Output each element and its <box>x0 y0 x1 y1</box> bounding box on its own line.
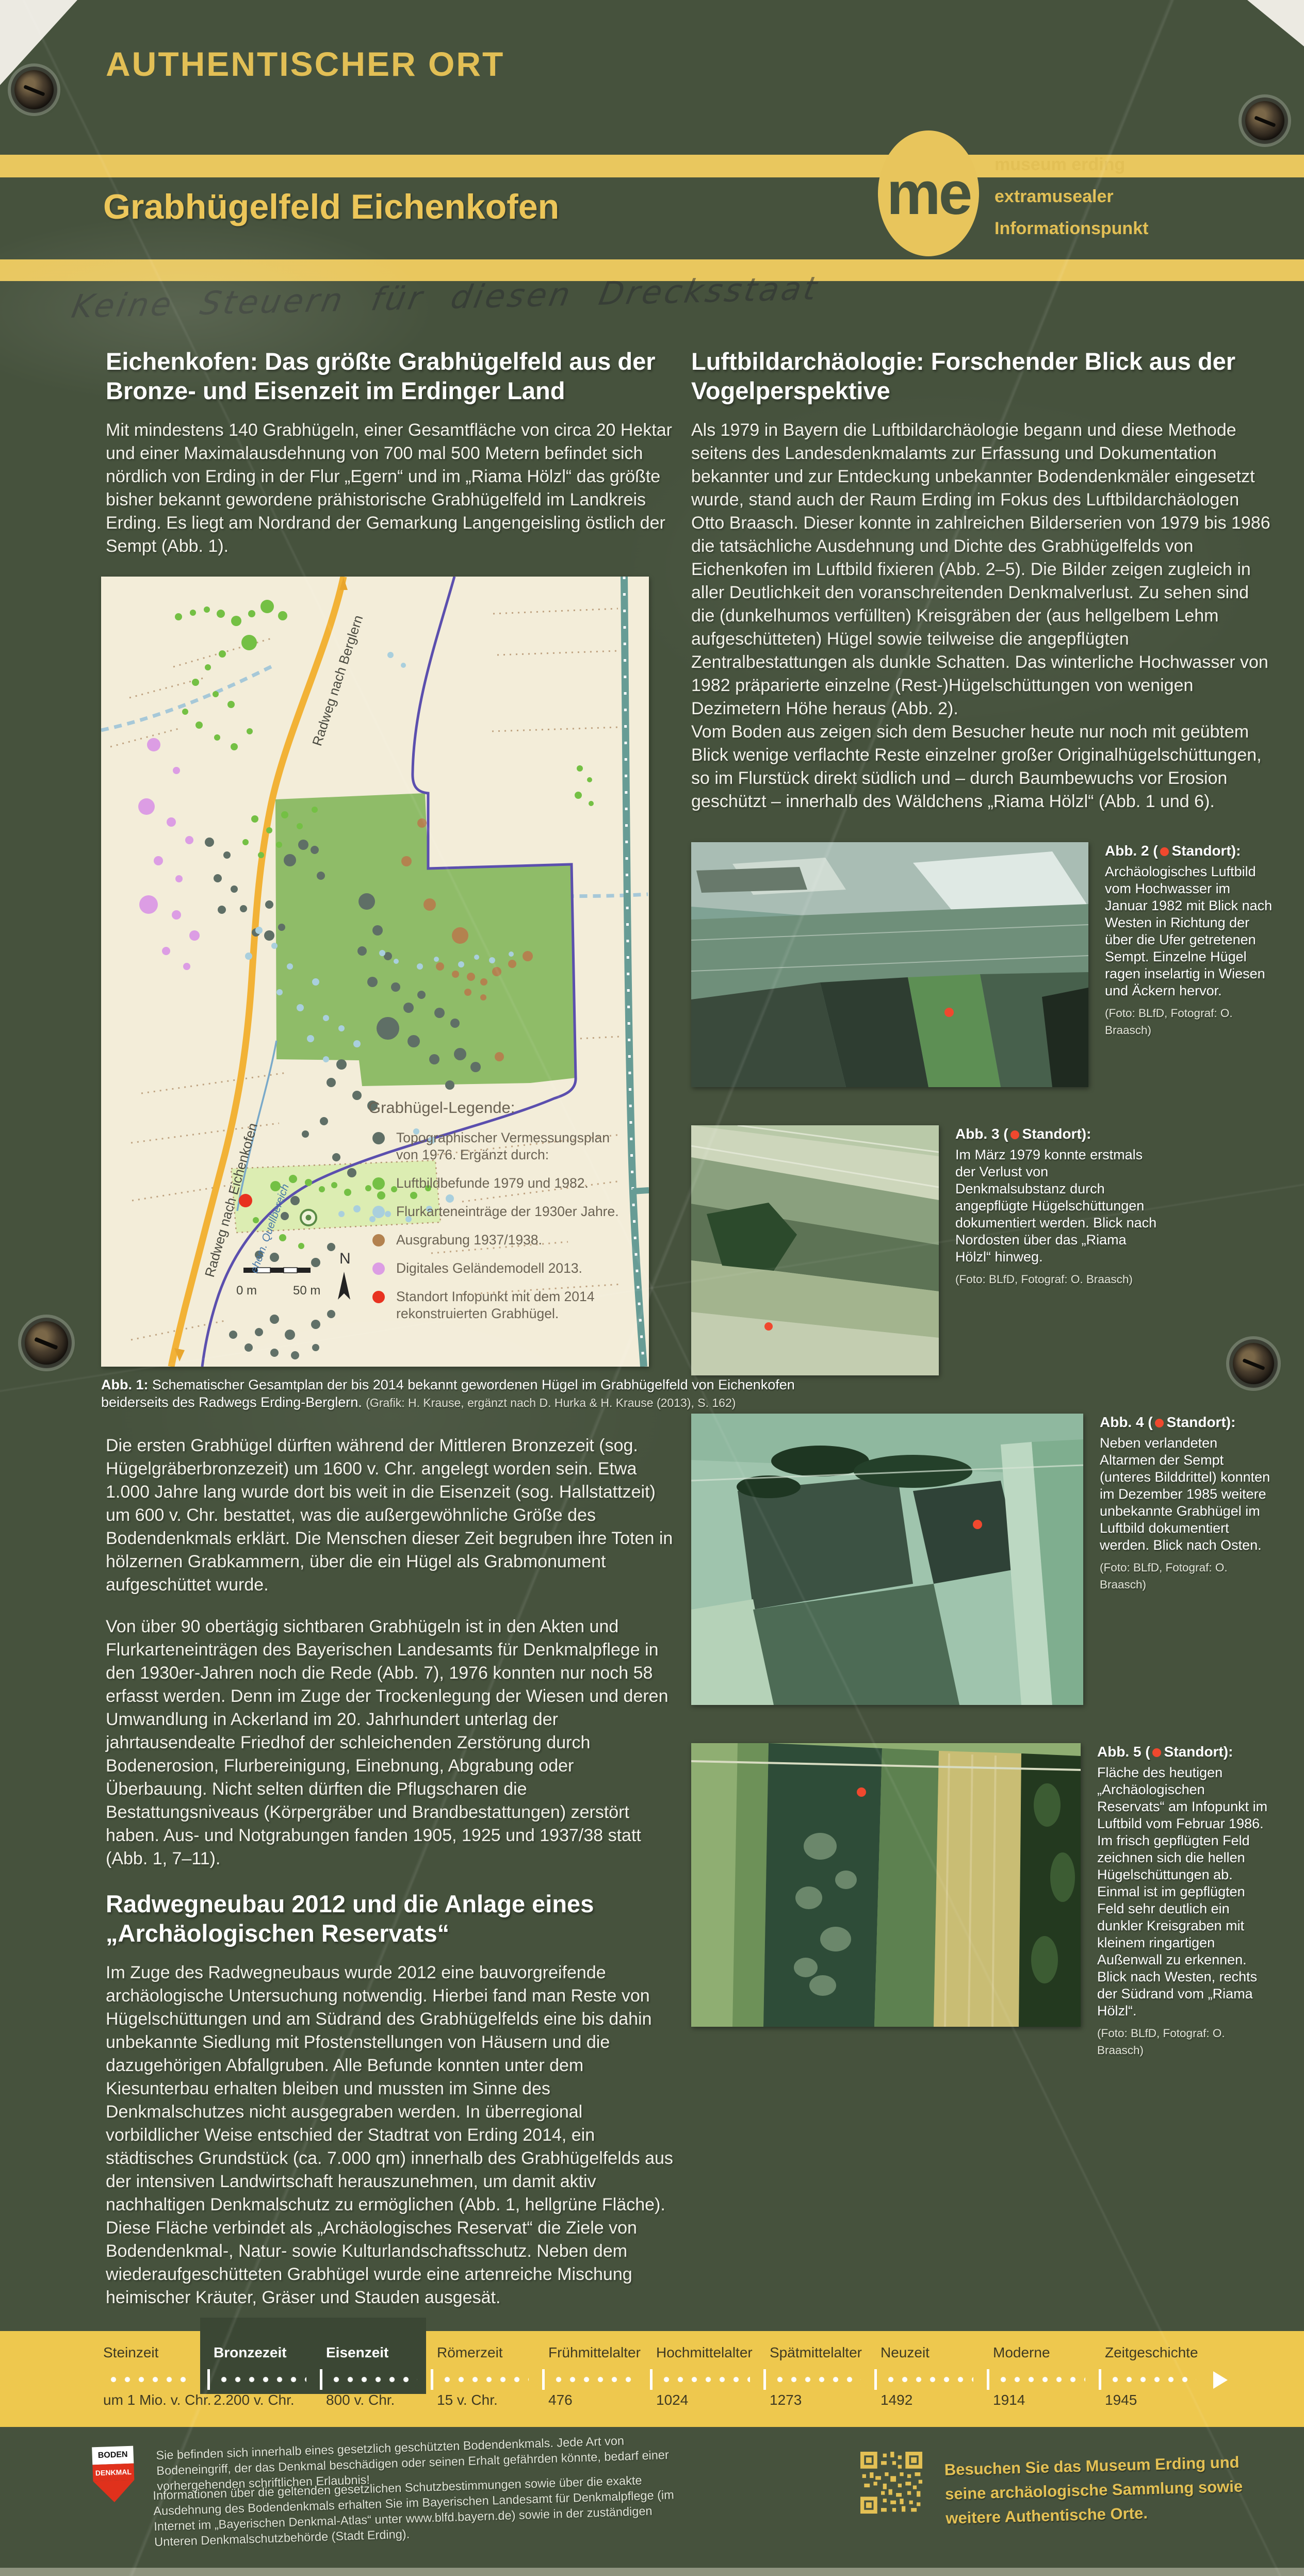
timeline-period-label: Steinzeit <box>103 2344 158 2361</box>
legend-item-label: Standort Infopunkt mit dem 2014 rekonstr… <box>396 1288 634 1322</box>
map-dot <box>367 977 378 987</box>
map-dot <box>205 664 211 670</box>
board-top-label: AUTHENTISCHER ORT <box>106 44 504 84</box>
standort-dot-icon <box>1155 1419 1164 1428</box>
map-dot <box>229 1331 237 1339</box>
map-dot <box>464 989 471 996</box>
aerial-photo-abb3 <box>691 1125 939 1375</box>
fig1-caption-label: Abb. 1: <box>101 1377 149 1392</box>
timeline-dots <box>221 2376 306 2383</box>
timeline-period-label: Moderne <box>993 2344 1050 2361</box>
legend-dot-icon <box>372 1132 385 1144</box>
timeline-dots <box>663 2376 750 2383</box>
timeline-period-date: 1914 <box>993 2392 1025 2408</box>
left-heading: Eichenkofen: Das größte Grabhügelfeld au… <box>106 347 673 405</box>
timeline-dots <box>556 2376 637 2383</box>
figure-abb3: Abb. 3 (Standort): Im März 1979 konnte e… <box>691 1125 1274 1375</box>
map-dot <box>336 1059 347 1070</box>
timeline-period-neuzeit: Neuzeit1492 <box>874 2331 987 2427</box>
map-dot <box>423 898 436 911</box>
map-dot <box>278 924 285 931</box>
map-dot <box>218 906 226 914</box>
legend-dot-icon <box>372 1206 385 1218</box>
timeline-period-date: 1945 <box>1105 2392 1137 2408</box>
map-dot <box>231 743 238 750</box>
map-dot <box>470 1062 481 1072</box>
map-dot <box>407 1035 420 1047</box>
timeline-period-label: Zeitgeschichte <box>1105 2344 1198 2361</box>
map-dot <box>589 801 594 806</box>
map-dot <box>311 1258 320 1267</box>
map-dot <box>480 978 487 986</box>
fig-credit: (Foto: BLfD, Fotograf: O. Braasch) <box>1105 1005 1274 1039</box>
timeline-period-zeitgeschichte: Zeitgeschichte1945 <box>1099 2331 1210 2427</box>
standort-dot-icon <box>1010 1130 1019 1139</box>
map-dot <box>279 1234 286 1241</box>
timeline-period-eisenzeit: Eisenzeit800 v. Chr. <box>320 2331 431 2427</box>
timeline-period-spätmittelalter: Spätmittelalter1273 <box>763 2331 874 2427</box>
map-dot <box>347 1168 356 1177</box>
map-dot <box>417 963 423 970</box>
map-dot <box>523 951 533 961</box>
map-dot <box>290 1196 300 1205</box>
map-dot <box>231 885 238 893</box>
timeline-dots <box>1000 2376 1085 2383</box>
map-dot <box>172 910 181 920</box>
map-dot <box>240 905 247 912</box>
map-dot <box>331 1182 337 1188</box>
fig-text: Im März 1979 konnte erstmals der Verlust… <box>955 1146 1162 1266</box>
map-dot <box>492 967 501 976</box>
fig1-caption-credit: (Grafik: H. Krause, ergänzt nach D. Hurk… <box>366 1396 736 1409</box>
timeline-dots <box>444 2376 529 2383</box>
railway-branch <box>632 1190 649 1191</box>
timeline-period-date: 2.200 v. Chr. <box>214 2392 295 2408</box>
map-dot <box>377 1017 399 1040</box>
map-dot <box>311 846 319 854</box>
map-dot <box>436 962 444 971</box>
map-dot <box>139 895 158 914</box>
timeline-period-römerzeit: Römerzeit15 v. Chr. <box>431 2331 542 2427</box>
bolt-screw-mid-left <box>25 1321 68 1365</box>
map-dot <box>147 738 160 751</box>
timeline-period-date: 800 v. Chr. <box>326 2392 395 2408</box>
map-dot <box>183 963 190 970</box>
map-dot <box>227 701 235 708</box>
qr-code <box>860 2452 922 2514</box>
timeline-band: Steinzeitum 1 Mio. v. Chr.Bronzezeit2.20… <box>0 2331 1304 2427</box>
map-dot <box>509 951 514 957</box>
map-dot <box>251 815 258 823</box>
map-dot <box>219 650 226 658</box>
map-dot <box>401 856 412 866</box>
map-dot <box>587 777 592 782</box>
figure-abb5: Abb. 5 (Standort): Fläche des heutigen „… <box>691 1743 1274 2059</box>
map-dot <box>175 613 182 620</box>
footer-qr-text: Besuchen Sie das Museum Erding und seine… <box>944 2450 1245 2530</box>
standort-marker <box>944 1008 954 1017</box>
map-dot <box>394 959 399 964</box>
fig-label: Abb. 2 <box>1105 843 1149 859</box>
map-dot <box>338 1211 345 1217</box>
map-dot <box>185 836 193 844</box>
map-dot <box>575 792 582 799</box>
timeline-period-bronzezeit: Bronzezeit2.200 v. Chr. <box>207 2331 320 2427</box>
standort-dot-icon <box>1152 1748 1161 1757</box>
wall-corner-top-right <box>1247 0 1304 46</box>
map-dot <box>305 1179 312 1186</box>
map-dot <box>270 1315 279 1324</box>
map-dot <box>253 1217 259 1223</box>
timeline-period-label: Hochmittelalter <box>656 2344 753 2361</box>
map-dot <box>489 957 495 963</box>
map-dot <box>297 1004 304 1011</box>
map-dot <box>372 925 383 936</box>
map-dot <box>307 1035 314 1042</box>
map-dot <box>401 663 406 668</box>
map-dot <box>379 950 385 956</box>
map-dot <box>255 1328 263 1336</box>
legend-dot-icon <box>372 1177 385 1190</box>
timeline-period-date: 1492 <box>881 2392 912 2408</box>
map-dot <box>391 982 400 992</box>
map-dot <box>298 840 308 850</box>
standort-marker <box>857 1787 866 1797</box>
legend-title: Grabhügel-Legende: <box>368 1098 634 1117</box>
map-dot <box>417 818 427 828</box>
map-dot <box>241 635 257 650</box>
map-dot <box>173 767 180 774</box>
map-dot <box>467 973 475 981</box>
legend-item: Ausgrabung 1937/1938. <box>368 1232 634 1249</box>
page-title: Grabhügelfeld Eichenkofen <box>103 187 559 227</box>
map-dot <box>264 930 274 941</box>
map-dot <box>508 960 516 968</box>
map-dot <box>312 807 318 813</box>
map-dot <box>358 893 375 910</box>
map-dot <box>245 953 252 960</box>
map-dot <box>281 811 288 818</box>
legend-dot-icon <box>372 1262 385 1275</box>
legend-item: Topographischer Vermessungsplan von 1976… <box>368 1129 634 1163</box>
standort-dot-icon <box>1160 847 1169 856</box>
figure-abb4: Abb. 4 (Standort): Neben verlandeten Alt… <box>691 1414 1274 1705</box>
map-dot <box>429 1054 439 1064</box>
figure-abb4-caption: Abb. 4 (Standort): Neben verlandeten Alt… <box>1100 1414 1274 1593</box>
map-dot <box>403 1003 414 1013</box>
map-dot <box>138 798 155 815</box>
map-dot <box>247 728 253 734</box>
map-dot <box>287 963 293 970</box>
map-dot <box>452 927 468 944</box>
map-dot <box>265 900 273 909</box>
legend-item-label: Digitales Geländemodell 2013. <box>396 1260 582 1277</box>
fig-text: Fläche des heutigen „Archäologischen Res… <box>1097 1764 1274 2020</box>
legend-item: Luftbildbefunde 1979 und 1982. <box>368 1175 634 1192</box>
map-dot <box>266 827 272 833</box>
map-dot <box>248 610 255 617</box>
map-dot <box>214 874 222 882</box>
fig-credit: (Foto: BLfD, Fotograf: O. Braasch) <box>1097 2025 1274 2059</box>
map-dot <box>276 842 282 848</box>
map-dot <box>242 839 249 845</box>
scale-label-fifty: 50 m <box>293 1284 320 1298</box>
bodendenkmal-logo: BODEN DENKMAL <box>92 2446 135 2503</box>
map-dot <box>298 1243 304 1249</box>
map-dot <box>495 1052 504 1061</box>
map-dot <box>454 1048 466 1060</box>
timeline-period-date: 15 v. Chr. <box>437 2392 498 2408</box>
map-dot <box>154 856 163 865</box>
map-dot <box>204 606 210 613</box>
map-dot <box>480 994 486 1000</box>
map-dot <box>297 823 303 829</box>
aerial-figures: Abb. 2 (Standort): Archäologisches Luftb… <box>691 842 1274 2059</box>
map-dot <box>387 652 394 658</box>
map-dot <box>327 1078 336 1087</box>
legend-item-label: Flurkarteneinträge der 1930er Jahre. <box>396 1203 619 1220</box>
legend-item-label: Ausgrabung 1937/1938. <box>396 1232 542 1249</box>
map-dot <box>320 1117 328 1125</box>
map-dot <box>285 1330 295 1340</box>
map-dot <box>327 1310 335 1318</box>
map-dot <box>352 1091 362 1100</box>
map-dot <box>239 1194 252 1207</box>
map-dot <box>450 1019 460 1028</box>
map-dot <box>270 1253 279 1262</box>
left-paragraph-2: Die ersten Grabhügel dürften während der… <box>106 1434 673 1597</box>
map-dot <box>260 600 274 613</box>
left-column: Eichenkofen: Das größte Grabhügelfeld au… <box>106 347 673 2328</box>
map-dot <box>323 1056 329 1062</box>
logo-line-3: Informationspunkt <box>995 212 1148 244</box>
left-paragraph-3: Von über 90 obertägig sichtbaren Grabhüg… <box>106 1615 673 1871</box>
footer: BODEN DENKMAL Sie befinden sich innerhal… <box>0 2427 1304 2576</box>
map-dot <box>223 851 231 859</box>
museum-erding-logo: me <box>878 130 979 256</box>
map-legend: Grabhügel-Legende: Topographischer Verme… <box>368 1098 634 1334</box>
fig-credit: (Foto: BLfD, Fotograf: O. Braasch) <box>1100 1559 1274 1593</box>
bolt-screw-top-left <box>14 70 54 109</box>
legend-item: Digitales Geländemodell 2013. <box>368 1260 634 1277</box>
legend-item-label: Topographischer Vermessungsplan von 1976… <box>396 1129 634 1163</box>
map-dot <box>327 1243 335 1251</box>
map-dot <box>205 838 214 847</box>
left-heading-2: Radwegneubau 2012 und die Anlage eines „… <box>106 1889 673 1948</box>
timeline-period-label: Römerzeit <box>437 2344 503 2361</box>
reconstructed-mound-center <box>306 1215 312 1221</box>
map-dot <box>323 1015 329 1021</box>
map-dot <box>311 1320 320 1329</box>
map-dot <box>474 955 479 960</box>
left-paragraph-1: Mit mindestens 140 Grabhügeln, einer Ges… <box>106 419 673 558</box>
timeline-period-steinzeit: Steinzeitum 1 Mio. v. Chr. <box>97 2331 207 2427</box>
map-dot <box>192 679 199 686</box>
map-dot <box>195 721 203 729</box>
map-dot <box>217 610 225 618</box>
timeline-period-label: Bronzezeit <box>214 2344 287 2361</box>
right-paragraph-1: Als 1979 in Bayern die Luftbildarchäolog… <box>691 419 1274 720</box>
map-dot <box>289 1175 297 1183</box>
legend-item: Flurkarteneinträge der 1930er Jahre. <box>368 1203 634 1220</box>
map-dot <box>312 978 319 986</box>
right-column: Luftbildarchäologie: Forschender Blick a… <box>691 347 1274 2097</box>
timeline-period-label: Frühmittelalter <box>548 2344 641 2361</box>
aerial-photo-abb4 <box>691 1414 1083 1705</box>
map-dot <box>270 1349 279 1357</box>
map-dot <box>276 989 283 995</box>
timeline-period-date: 1273 <box>770 2392 802 2408</box>
map-dot <box>175 875 183 882</box>
timeline-period-hochmittelalter: Hochmittelalter1024 <box>650 2331 763 2427</box>
map-dot <box>281 1212 289 1220</box>
figure-abb2-caption: Abb. 2 (Standort): Archäologisches Luftb… <box>1105 842 1274 1039</box>
logo-caption: museum erding extramusealer Informations… <box>995 149 1148 244</box>
fig-text: Archäologisches Luftbild vom Hochwasser … <box>1105 863 1274 999</box>
figure-abb5-caption: Abb. 5 (Standort): Fläche des heutigen „… <box>1097 1743 1274 2059</box>
standort-marker <box>764 1322 773 1331</box>
timeline-dots <box>1112 2376 1196 2383</box>
aerial-photo-abb2 <box>691 842 1088 1087</box>
map-dot <box>452 971 459 978</box>
map-dot <box>357 946 367 956</box>
fig-label: Abb. 3 <box>955 1126 1000 1142</box>
bodendenkmal-logo-bottom: DENKMAL <box>92 2464 134 2482</box>
map-dot <box>302 1130 309 1138</box>
bodendenkmal-logo-top: BODEN <box>92 2446 134 2465</box>
logo-monogram: me <box>887 158 971 228</box>
fig-label: Abb. 5 <box>1097 1744 1142 1760</box>
map-dot <box>167 817 176 827</box>
map-dot <box>417 991 426 999</box>
legend-dot-icon <box>372 1234 385 1246</box>
timeline-period-label: Spätmittelalter <box>770 2344 862 2361</box>
map-dot <box>353 1205 361 1212</box>
bodendenkmal-logo-point <box>93 2480 135 2503</box>
map-dot <box>271 943 278 949</box>
map-dot <box>332 1153 340 1161</box>
map-dot <box>458 961 464 967</box>
bolt-screw-top-right <box>1245 101 1284 140</box>
figure-abb3-caption: Abb. 3 (Standort): Im März 1979 konnte e… <box>955 1125 1162 1288</box>
map-dot <box>353 1040 361 1047</box>
map-dot <box>312 1344 319 1351</box>
right-paragraph-2: Vom Boden aus zeigen sich dem Besucher h… <box>691 720 1274 813</box>
map-dot <box>445 1080 454 1090</box>
logo-line-2: extramusealer <box>995 181 1148 212</box>
map-dot <box>319 1186 325 1192</box>
scale-label-zero: 0 m <box>236 1284 257 1298</box>
timeline-dots <box>888 2376 973 2383</box>
figure-abb2: Abb. 2 (Standort): Archäologisches Luftb… <box>691 842 1274 1087</box>
map-dot <box>258 852 264 858</box>
map-dot <box>255 927 263 934</box>
map-dot <box>213 691 219 697</box>
map-dot <box>244 1343 253 1352</box>
legend-dot-icon <box>372 1291 385 1303</box>
map-dot <box>231 616 241 626</box>
map-dot <box>182 709 188 715</box>
standort-marker <box>973 1520 982 1529</box>
timeline-period-moderne: Moderne1914 <box>987 2331 1099 2427</box>
timeline-period-label: Neuzeit <box>881 2344 930 2361</box>
logo-line-1: museum erding <box>995 149 1148 181</box>
fig-credit: (Foto: BLfD, Fotograf: O. Braasch) <box>955 1271 1162 1288</box>
map-dot <box>291 1351 299 1359</box>
map-dot <box>577 765 583 772</box>
map-dot <box>434 957 439 962</box>
map-dot <box>344 1189 351 1196</box>
map-dot <box>162 947 170 955</box>
timeline-period-label: Eisenzeit <box>326 2344 388 2361</box>
timeline-period-date: 476 <box>548 2392 573 2408</box>
fig-label: Abb. 4 <box>1100 1414 1144 1430</box>
left-paragraph-4: Im Zuge des Radwegneubaus wurde 2012 ein… <box>106 1961 673 2309</box>
map-dot <box>434 1008 445 1018</box>
north-label: N <box>339 1250 351 1267</box>
legend-item-label: Luftbildbefunde 1979 und 1982. <box>396 1175 589 1192</box>
map-dot <box>190 610 196 616</box>
map-dot <box>189 930 200 941</box>
timeline-dots <box>777 2376 861 2383</box>
map-dot <box>284 854 296 866</box>
fig-text: Neben verlandeten Altarmen der Sempt (un… <box>1100 1435 1274 1554</box>
bolt-screw-mid-right <box>1233 1343 1274 1384</box>
timeline-arrow-icon <box>1213 2371 1228 2389</box>
timeline-period-frühmittelalter: Frühmittelalter476 <box>542 2331 650 2427</box>
timeline-period-date: um 1 Mio. v. Chr. <box>103 2392 211 2408</box>
map-dot <box>278 611 287 620</box>
map-dot <box>338 1025 345 1031</box>
timeline-dots <box>110 2376 194 2383</box>
map-figure-abb1: 0 m 50 m N Radweg nach Berglern Radweg n… <box>101 577 649 1367</box>
legend-item: Standort Infopunkt mit dem 2014 rekonstr… <box>368 1288 634 1322</box>
timeline-dots <box>333 2376 417 2383</box>
aerial-photo-abb5 <box>691 1743 1081 2027</box>
map-dot <box>317 872 325 880</box>
timeline-period-date: 1024 <box>656 2392 688 2408</box>
right-heading: Luftbildarchäologie: Forschender Blick a… <box>691 347 1274 405</box>
map-dot <box>214 734 220 741</box>
